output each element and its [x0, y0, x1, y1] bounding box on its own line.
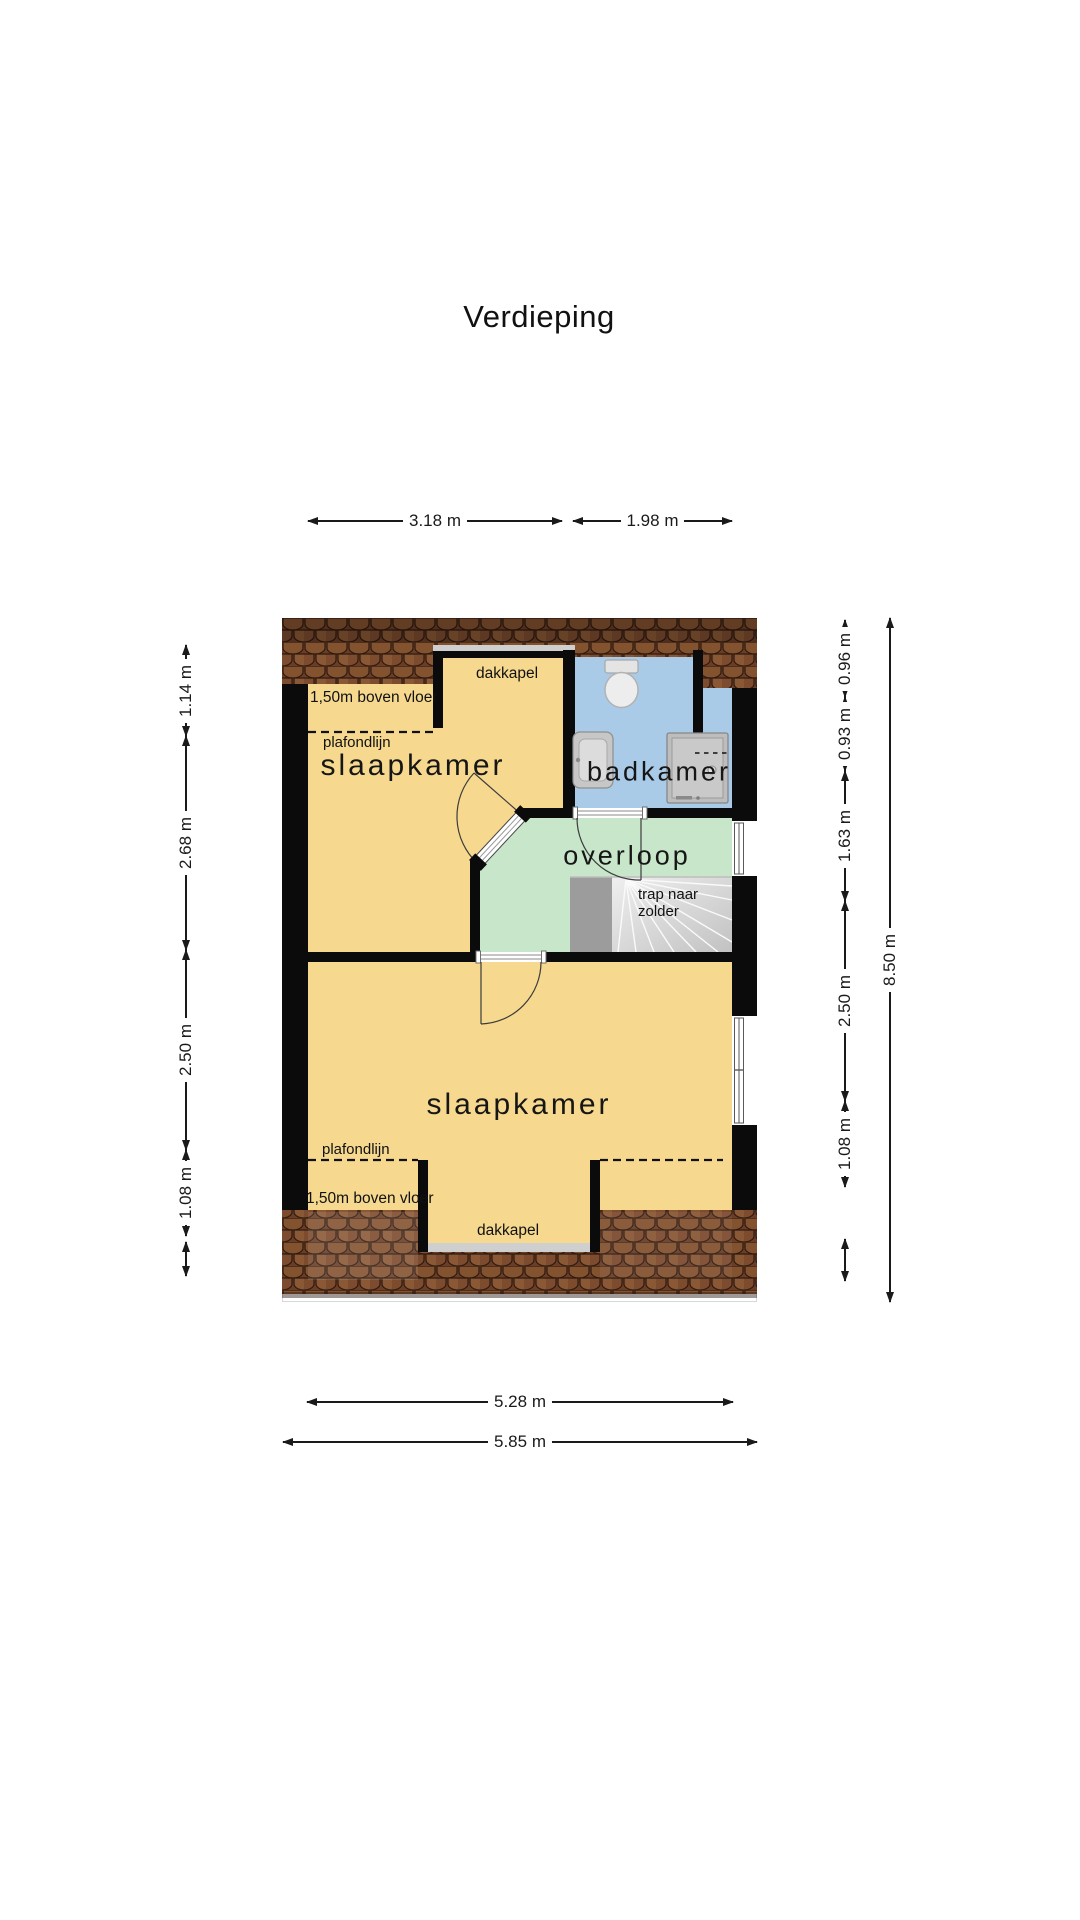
dim-right-5: 1.08 m — [836, 1101, 854, 1187]
window-bedroom-bottom — [732, 1016, 757, 1125]
dim-label: 0.96 m — [835, 627, 855, 691]
label-stairs-note: trap naar zolder — [638, 886, 698, 920]
dim-bottom-2: 5.85 m — [283, 1433, 757, 1451]
dim-left-2: 2.68 m — [177, 736, 195, 950]
toilet — [605, 660, 638, 708]
floorplan-page: Verdieping — [0, 0, 1080, 1920]
dim-top-1: 3.18 m — [308, 512, 562, 530]
label-ceiling-line-bottom: plafondlijn — [322, 1141, 390, 1158]
label-bedroom-bottom: slaapkamer — [426, 1088, 611, 1122]
dim-label: 2.50 m — [176, 1018, 196, 1082]
dim-label: 5.85 m — [488, 1432, 552, 1452]
dim-right-4: 2.50 m — [836, 901, 854, 1101]
dim-bottom-1: 5.28 m — [307, 1393, 733, 1411]
dim-label: 0.93 m — [835, 702, 855, 766]
label-height-note-top: 1,50m boven vloer — [310, 689, 438, 707]
stairs-note-line1: trap naar — [638, 886, 698, 903]
dim-label: 1.14 m — [176, 659, 196, 723]
dim-label: 1.08 m — [176, 1161, 196, 1225]
label-bathroom: badkamer — [587, 757, 731, 788]
dim-left-3: 2.50 m — [177, 950, 195, 1150]
dim-right-3: 1.63 m — [836, 771, 854, 901]
dim-label: 2.68 m — [176, 811, 196, 875]
window-landing — [732, 821, 757, 876]
dim-right-1: 0.96 m — [836, 620, 854, 697]
stairs-note-line2: zolder — [638, 903, 698, 920]
dim-label: 1.63 m — [835, 804, 855, 868]
label-landing: overloop — [563, 841, 691, 872]
label-dormer-bottom: dakkapel — [477, 1222, 539, 1240]
dim-label: 1.98 m — [621, 511, 685, 531]
label-bedroom-top: slaapkamer — [320, 749, 505, 783]
dormer-bottom-sill — [428, 1243, 590, 1252]
dim-label: 8.50 m — [880, 928, 900, 992]
dim-left-4: 1.08 m — [177, 1150, 195, 1236]
dim-top-2: 1.98 m — [573, 512, 732, 530]
label-height-note-bottom: 1,50m boven vloer — [306, 1190, 434, 1208]
dim-arrow — [185, 1242, 187, 1276]
page-title: Verdieping — [463, 299, 615, 335]
dim-right-2: 0.93 m — [836, 697, 854, 771]
dim-right-roof — [836, 1239, 854, 1281]
label-dormer-top: dakkapel — [476, 665, 538, 683]
dim-total-height: 8.50 m — [881, 618, 899, 1302]
dim-left-roof — [177, 1242, 195, 1276]
dim-label: 2.50 m — [835, 969, 855, 1033]
dormer-top-sill — [433, 645, 575, 651]
dim-label: 3.18 m — [403, 511, 467, 531]
dim-arrow — [844, 1239, 846, 1281]
dim-label: 1.08 m — [835, 1112, 855, 1176]
dim-label: 5.28 m — [488, 1392, 552, 1412]
dim-left-1: 1.14 m — [177, 645, 195, 736]
label-ceiling-line-top: plafondlijn — [323, 734, 391, 751]
